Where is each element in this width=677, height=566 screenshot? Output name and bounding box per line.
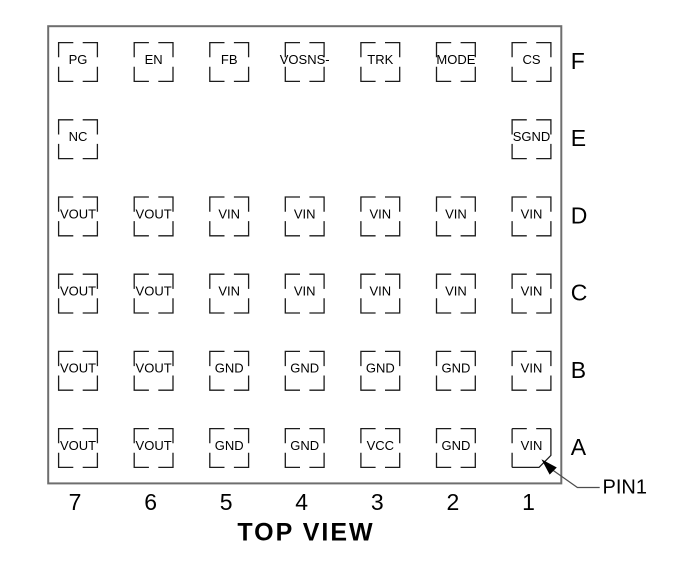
svg-text:VIN: VIN [445, 206, 467, 221]
svg-text:D: D [571, 202, 588, 228]
svg-text:VOUT: VOUT [60, 361, 96, 376]
svg-text:7: 7 [69, 489, 82, 515]
svg-text:VOUT: VOUT [136, 284, 172, 299]
svg-text:VOUT: VOUT [60, 284, 96, 299]
svg-text:NC: NC [69, 129, 88, 144]
svg-text:VIN: VIN [521, 284, 543, 299]
svg-text:6: 6 [144, 489, 157, 515]
svg-text:VOUT: VOUT [136, 438, 172, 453]
svg-text:SGND: SGND [513, 129, 551, 144]
svg-text:5: 5 [220, 489, 233, 515]
svg-text:VIN: VIN [294, 284, 316, 299]
svg-text:PIN1: PIN1 [603, 477, 647, 499]
svg-text:F: F [571, 48, 585, 74]
svg-text:VIN: VIN [218, 284, 240, 299]
svg-text:MODE: MODE [436, 52, 475, 67]
svg-text:3: 3 [371, 489, 384, 515]
svg-text:1: 1 [522, 489, 535, 515]
svg-text:TRK: TRK [367, 52, 393, 67]
svg-text:4: 4 [295, 489, 308, 515]
svg-text:B: B [571, 357, 586, 383]
svg-text:VOUT: VOUT [60, 438, 96, 453]
svg-text:VOSNS-: VOSNS- [280, 52, 330, 67]
svg-text:C: C [571, 280, 588, 306]
svg-text:VIN: VIN [521, 361, 543, 376]
svg-text:VCC: VCC [367, 438, 394, 453]
svg-text:VIN: VIN [521, 438, 543, 453]
svg-text:VOUT: VOUT [136, 361, 172, 376]
svg-text:GND: GND [441, 361, 470, 376]
svg-text:GND: GND [215, 361, 244, 376]
svg-text:VIN: VIN [445, 284, 467, 299]
svg-text:EN: EN [145, 52, 163, 67]
svg-text:PG: PG [69, 52, 88, 67]
svg-text:A: A [571, 434, 587, 460]
svg-text:VIN: VIN [369, 206, 391, 221]
svg-text:VIN: VIN [294, 206, 316, 221]
svg-text:TOP VIEW: TOP VIEW [237, 519, 374, 547]
svg-text:VIN: VIN [218, 206, 240, 221]
svg-text:FB: FB [221, 52, 238, 67]
svg-text:GND: GND [215, 438, 244, 453]
svg-text:VOUT: VOUT [60, 206, 96, 221]
svg-text:VIN: VIN [369, 284, 391, 299]
svg-text:GND: GND [441, 438, 470, 453]
svg-text:2: 2 [447, 489, 460, 515]
svg-text:VOUT: VOUT [136, 206, 172, 221]
svg-text:VIN: VIN [521, 206, 543, 221]
svg-text:GND: GND [290, 438, 319, 453]
svg-text:GND: GND [366, 361, 395, 376]
svg-text:GND: GND [290, 361, 319, 376]
svg-text:CS: CS [522, 52, 540, 67]
svg-text:E: E [571, 125, 586, 151]
